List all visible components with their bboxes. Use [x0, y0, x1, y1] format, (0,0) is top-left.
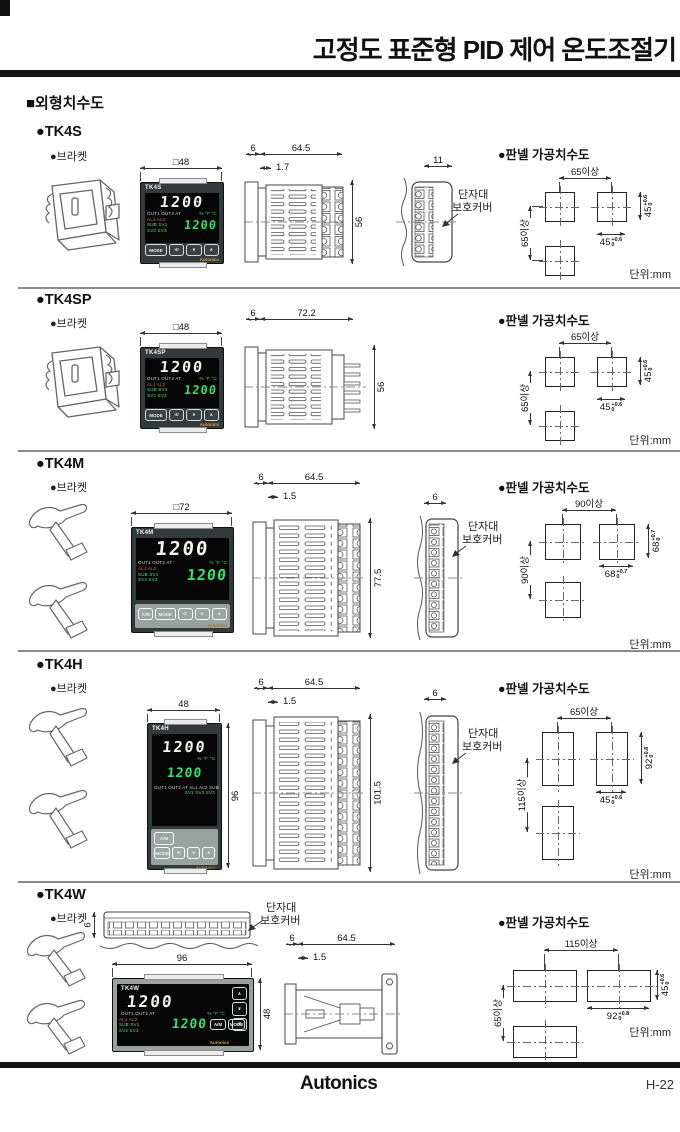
tk4s-cutout-width-dim: 45+0.60: [597, 234, 625, 235]
tk4s-cover-depth-dim: 11: [424, 166, 452, 167]
terminal-cover-label: 보호커버: [462, 738, 502, 754]
autonics-logo: Autonics: [300, 1073, 377, 1095]
tk4w-side-view: [284, 970, 402, 1058]
tick: [112, 968, 113, 977]
cutout-square: [545, 582, 581, 618]
tk4s-front-width-dim: □48: [140, 168, 222, 169]
tk4sp-cutout-title: ●판넬 가공치수도: [498, 310, 590, 329]
up-button: ∧: [204, 244, 219, 256]
tk4m-bezel-front-dim: 6: [254, 483, 268, 484]
section-divider: [18, 450, 680, 452]
tk4h-front-width-dim: 48: [147, 710, 220, 711]
tk4w-front-height-dim: 48: [260, 978, 261, 1050]
tk4sp-depth-dim: 72.2: [260, 319, 353, 320]
tk4h-label: ●TK4H: [36, 657, 83, 673]
tk4w-panel-dim: 1.5: [298, 958, 308, 959]
tk4s-panel-dim: 1.7: [260, 168, 271, 169]
tk4sp-bracket-label: ●브라켓: [50, 315, 87, 331]
tick: [221, 172, 222, 181]
tk4m-label: ●TK4M: [36, 456, 84, 472]
cutout-rect: [542, 806, 574, 860]
page-number: H-22: [646, 1077, 674, 1092]
tk4h-cover-depth-dim: 6: [424, 699, 446, 700]
tk4sp-cutout-height-dim: 45+0.60: [640, 357, 641, 385]
tk4h-panel-dim: 1.5: [268, 702, 278, 703]
tk4w-depth-dim: 64.5: [298, 944, 395, 945]
tk4s-cutout-title: ●판넬 가공치수도: [498, 144, 590, 163]
tick: [532, 206, 543, 207]
tk4m-cutout-width-dim: 68+0.70: [599, 566, 633, 567]
cutout-square: [599, 524, 635, 560]
corner-mark: [0, 0, 10, 16]
tk4s-depth-dim: 64.5: [260, 154, 342, 155]
tk4m-bracket-drawing: [26, 498, 114, 648]
cutout-square: [597, 357, 627, 387]
am-button: A/M: [210, 1019, 226, 1030]
tk4w-bracket-drawing: [24, 928, 112, 1060]
tk4sp-label: ●TK4SP: [36, 292, 92, 308]
tk4w-bracket-label: ●브라켓: [50, 910, 87, 926]
am-button: A/M: [154, 832, 174, 845]
tk4m-cutout-title: ●판넬 가공치수도: [498, 477, 590, 496]
leader-line: [448, 751, 468, 767]
tk4h-cutout-height-dim: 92+0.80: [641, 732, 642, 784]
tk4h-depth-dim: 64.5: [268, 688, 360, 689]
tk4m-side-view: [252, 516, 364, 640]
cutout-rect: [542, 732, 574, 786]
tk4sp-side-view: [244, 343, 366, 431]
tk4sp-bracket-drawing: [22, 335, 122, 431]
tk4m-front-view: TK4M 1200 OUT1 OUT2 AT% °F °C AL1 AL2SUB…: [131, 527, 234, 633]
pv-display: 1200: [144, 193, 220, 211]
tk4h-cutout-title: ●판넬 가공치수도: [498, 678, 590, 697]
unit-note: 단위:mm: [629, 1024, 671, 1040]
terminal-cover-label: 보호커버: [260, 912, 300, 928]
tk4w-front-width-dim: 96: [112, 964, 252, 965]
tk4h-cutout-width-dim: 45+0.60: [596, 792, 626, 793]
tick: [532, 260, 543, 261]
unit-note: 단위:mm: [629, 866, 671, 882]
tick: [221, 337, 222, 346]
tk4h-bezel-front-dim: 6: [254, 688, 268, 689]
mode-button: MODE: [145, 244, 167, 256]
cutout-rect: [513, 1026, 577, 1058]
unit-indicators: % °F °C: [200, 211, 218, 217]
tk4sp-cutout-vspan: 65이상: [530, 371, 531, 425]
tk4m-height-dim: 77.5: [370, 518, 371, 638]
tk4w-cutout-height-dim: 45+0.60: [657, 970, 658, 1000]
cutout-square: [545, 411, 575, 441]
tk4h-side-view: [252, 712, 364, 874]
down-button: ∨: [186, 244, 201, 256]
cutout-square: [597, 192, 627, 222]
leader-line: [448, 544, 468, 560]
tk4m-depth-dim: 64.5: [268, 483, 360, 484]
tk4w-bezel-front-dim: 6: [286, 944, 298, 945]
tk4w-cutout-vspan: 65이상: [503, 985, 504, 1041]
section-divider: [18, 650, 680, 652]
tk4h-bracket-drawing: [26, 700, 114, 860]
tick: [219, 714, 220, 722]
tk4w-front-view: TK4W 1200 OUT1 OUT2 AT% °F °C AL1 AL2SUB…: [112, 978, 254, 1052]
tk4m-bracket-label: ●브라켓: [50, 479, 87, 495]
tk4m-front-width-dim: □72: [131, 513, 232, 514]
tk4s-bezel-front-dim: 6: [246, 154, 260, 155]
tk4s-cutout-hspan: 65이상: [559, 178, 611, 179]
tk4w-cutout-width-dim: 92+0.80: [587, 1008, 649, 1009]
tk4s-height-dim: 56: [352, 180, 353, 264]
section-divider: [18, 287, 680, 289]
cutout-square: [545, 357, 575, 387]
tk4s-bracket-label: ●브라켓: [50, 148, 87, 164]
cutout-rect: [596, 732, 628, 786]
tk4s-front-view: TK4S 1200 OUT1 OUT2 AT% °F °C AL1 AL2SUB…: [140, 182, 224, 264]
button-panel: A/M MODE ≪ ∨ ∧ Autonics: [135, 604, 230, 628]
tk4s-cutout-vspan: 65이상: [530, 206, 531, 260]
device-display: 1200 OUT1 OUT2 AT% °F °C AL1 AL2SUB SV1S…: [145, 193, 219, 243]
leader-line: [438, 212, 460, 230]
tk4h-terminal-cover-view: [414, 712, 462, 874]
tick: [251, 968, 252, 977]
tk4h-height-dim: 101.5: [370, 714, 371, 872]
datasheet-page: 고정도 표준형 PID 제어 온도조절기 ■외형치수도 ●TK4S ●브라켓 □…: [0, 0, 680, 1132]
tk4h-bracket-label: ●브라켓: [50, 680, 87, 696]
button-panel: A/M MODE ≪ ∨ ∧ Autonics: [151, 829, 218, 865]
tk4w-cutout-title: ●판넬 가공치수도: [498, 912, 590, 931]
tk4sp-cutout-hspan: 65이상: [559, 343, 611, 344]
device-model: TK4S: [145, 185, 162, 191]
tick: [231, 517, 232, 526]
tk4h-cutout-vspan: 115이상: [527, 758, 528, 832]
section-divider: [18, 881, 680, 883]
tk4h-cutout-hspan: 65이상: [557, 718, 611, 719]
tk4s-bracket-drawing: [22, 168, 122, 264]
tk4sp-bezel-front-dim: 6: [246, 319, 260, 320]
tick: [131, 517, 132, 526]
tk4w-label: ●TK4W: [36, 887, 86, 903]
tk4m-cutout-height-dim: 68+0.70: [648, 524, 649, 558]
unit-note: 단위:mm: [629, 432, 671, 448]
tick: [140, 172, 141, 181]
am-button: A/M: [138, 608, 153, 620]
sv-display: 1200: [165, 218, 217, 232]
tk4h-front-view: TK4H 1200 % °F °C 1200 OUT1 OUT2 AT AL1 …: [147, 723, 222, 870]
tk4s-cutout-height-dim: 45+0.60: [640, 192, 641, 220]
cutout-rect: [513, 970, 577, 1002]
tk4m-cutout-vspan: 90이상: [530, 541, 531, 599]
tk4h-front-height-dim: 96: [228, 723, 229, 868]
shift-button: ≪: [169, 244, 184, 256]
tk4m-panel-dim: 1.5: [268, 497, 278, 498]
cutout-rect: [587, 970, 651, 1002]
tk4sp-front-width-dim: □48: [140, 333, 222, 334]
page-title: 고정도 표준형 PID 제어 온도조절기: [313, 30, 676, 67]
cutout-square: [545, 524, 581, 560]
tk4s-label: ●TK4S: [36, 124, 82, 140]
tick: [147, 714, 148, 722]
tk4w-top-view: [100, 906, 258, 952]
leader-line: [244, 920, 264, 934]
cutout-square: [545, 192, 575, 222]
tk4m-terminal-cover-view: [414, 516, 462, 640]
footer-rule: [0, 1062, 680, 1068]
terminal-cover-label: 보호커버: [462, 531, 502, 547]
tk4m-cover-depth-dim: 6: [424, 503, 446, 504]
tk4s-side-view: [244, 178, 346, 266]
tk4sp-height-dim: 56: [374, 345, 375, 429]
tk4sp-cutout-width-dim: 45+0.60: [597, 399, 625, 400]
section-heading: ■외형치수도: [26, 92, 104, 113]
tk4w-cutout-hspan: 115이상: [544, 950, 618, 951]
brand-mark: Autonics: [200, 257, 219, 262]
tk4sp-front-view: TK4SP 1200 OUT1 OUT2 AT% °F °C AL1 AL2SU…: [140, 347, 224, 429]
tick: [140, 337, 141, 346]
tk4m-cutout-hspan: 90이상: [562, 510, 616, 511]
cutout-square: [545, 246, 575, 276]
unit-note: 단위:mm: [629, 266, 671, 282]
header-rule: [0, 70, 680, 77]
